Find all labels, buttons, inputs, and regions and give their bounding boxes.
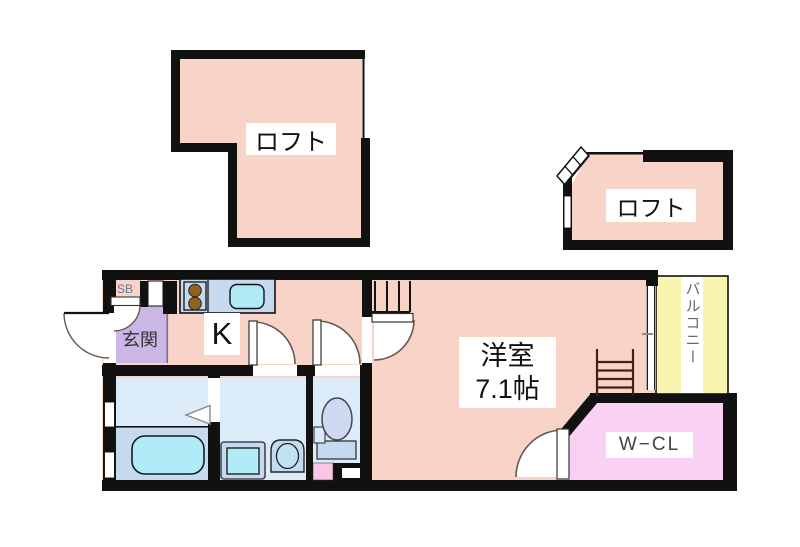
entrance-label: 玄関 <box>112 327 168 351</box>
floor-plan-drawing <box>0 0 800 547</box>
western-room-label: 洋室 7.1帖 <box>459 337 556 408</box>
burner-icon <box>189 297 202 310</box>
washing-machine-icon <box>221 442 265 479</box>
bathtub-icon <box>132 436 204 474</box>
floor-plan: ロフト ロフト K 玄関 SB 洋室 7.1帖 W−CL バルコニー <box>0 0 800 547</box>
shoe-box-label: SB <box>110 280 140 298</box>
walk-in-closet-label: W−CL <box>606 432 693 458</box>
western-room-size: 7.1帖 <box>475 373 540 406</box>
loft-upper-left-label: ロフト <box>246 123 336 155</box>
kitchen-label: K <box>204 313 240 355</box>
kitchen-sink-icon <box>230 285 264 309</box>
burner-icon <box>189 284 202 297</box>
vanity-sink-icon <box>271 440 304 472</box>
window-west-1 <box>105 402 115 427</box>
entrance-door-outer <box>64 313 109 358</box>
kitchen-counter-icon <box>180 279 275 313</box>
western-room-name: 洋室 <box>481 340 535 373</box>
loft-upper-right-label: ロフト <box>606 189 696 222</box>
window-west-2 <box>105 452 115 478</box>
balcony-label: バルコニー <box>680 281 704 393</box>
